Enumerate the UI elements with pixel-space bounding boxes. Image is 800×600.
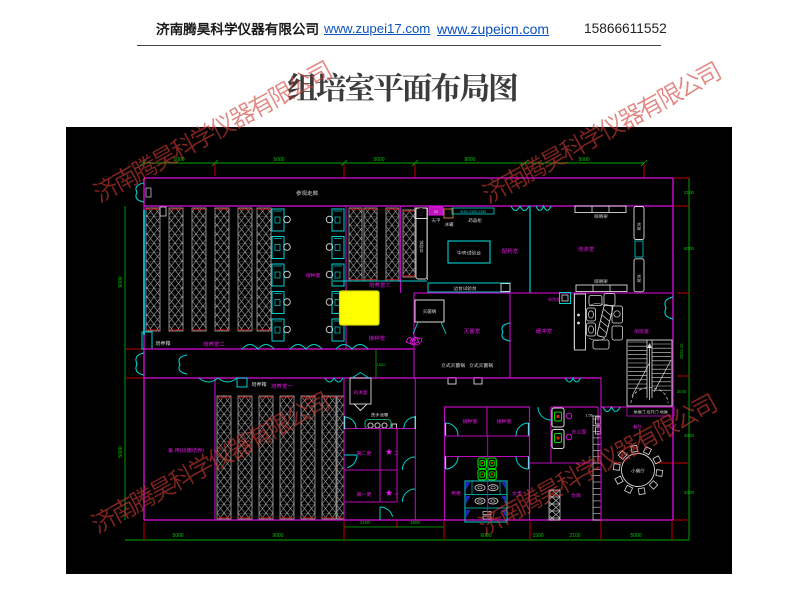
svg-text:5000: 5000 <box>172 532 183 539</box>
svg-text:货架: 货架 <box>636 274 642 283</box>
svg-text:一: 一 <box>393 491 398 498</box>
svg-text:天平: 天平 <box>432 218 441 224</box>
svg-text:中央试验台: 中央试验台 <box>457 250 481 257</box>
svg-text:男更: 男更 <box>451 490 461 497</box>
svg-text:2100: 2100 <box>684 190 695 196</box>
svg-text:00: 00 <box>434 209 439 215</box>
svg-text:立式灭菌锅: 立式灭菌锅 <box>469 362 493 369</box>
svg-text:风淋室: 风淋室 <box>354 390 368 396</box>
svg-text:清洗室: 清洗室 <box>548 297 561 303</box>
svg-text:6000: 6000 <box>684 246 695 252</box>
svg-text:立式灭菌锅: 立式灭菌锅 <box>441 362 465 369</box>
svg-text:培养箱: 培养箱 <box>251 381 266 388</box>
svg-text:小餐厅: 小餐厅 <box>631 469 645 475</box>
svg-text:第二更: 第二更 <box>356 450 371 457</box>
svg-text:晾晒架: 晾晒架 <box>594 214 608 220</box>
svg-text:培养室一: 培养室一 <box>271 382 294 390</box>
svg-text:接种室: 接种室 <box>369 334 386 342</box>
svg-text:9024.16: 9024.16 <box>679 343 685 359</box>
svg-text:2100: 2100 <box>569 532 580 539</box>
svg-text:配药室: 配药室 <box>502 247 519 255</box>
svg-text:药品柜: 药品柜 <box>468 218 482 224</box>
svg-text:接种室: 接种室 <box>496 418 511 425</box>
svg-text:2040: 2040 <box>677 389 687 395</box>
svg-text:5000: 5000 <box>630 532 641 539</box>
svg-text:洗涤室: 洗涤室 <box>578 245 595 253</box>
svg-text:培养室三: 培养室三 <box>369 281 392 289</box>
svg-text:9000: 9000 <box>272 532 283 539</box>
svg-text:培养室二: 培养室二 <box>203 340 226 348</box>
svg-text:1.56: 1.56 <box>585 413 594 419</box>
svg-text:接种室: 接种室 <box>305 272 320 279</box>
svg-text:1500: 1500 <box>532 532 543 539</box>
svg-text:第一更: 第一更 <box>356 491 371 498</box>
svg-text:晾晒架: 晾晒架 <box>594 279 608 285</box>
svg-text:冰箱: 冰箱 <box>445 222 454 228</box>
svg-text:2100: 2100 <box>360 520 371 526</box>
svg-text:二: 二 <box>393 450 398 457</box>
svg-text:缓冲室: 缓冲室 <box>536 327 553 335</box>
svg-text:洗手池等: 洗手池等 <box>371 413 389 419</box>
svg-text:5000: 5000 <box>373 156 384 163</box>
svg-text:办公室: 办公室 <box>571 429 586 436</box>
svg-text:1500: 1500 <box>377 362 387 368</box>
svg-text:9000: 9000 <box>117 276 124 287</box>
svg-text:5000: 5000 <box>273 156 284 163</box>
svg-text:接种室: 接种室 <box>462 418 477 425</box>
svg-text:4000: 4000 <box>684 490 695 496</box>
svg-text:培养箱: 培养箱 <box>155 340 170 347</box>
svg-text:边台试验台: 边台试验台 <box>454 286 477 292</box>
svg-text:5000: 5000 <box>117 446 124 457</box>
svg-text:货架: 货架 <box>636 222 642 231</box>
svg-text:试验台: 试验台 <box>419 240 425 254</box>
svg-text:灭菌室: 灭菌室 <box>464 327 481 335</box>
svg-text:灭菌锅: 灭菌锅 <box>423 309 437 315</box>
svg-text:值班室: 值班室 <box>634 328 649 335</box>
svg-text:8000: 8000 <box>464 156 475 163</box>
svg-text:3150-2350-2350: 3150-2350-2350 <box>460 210 486 215</box>
svg-text:1500: 1500 <box>410 520 421 526</box>
svg-text:参观走廊: 参观走廊 <box>296 189 319 197</box>
